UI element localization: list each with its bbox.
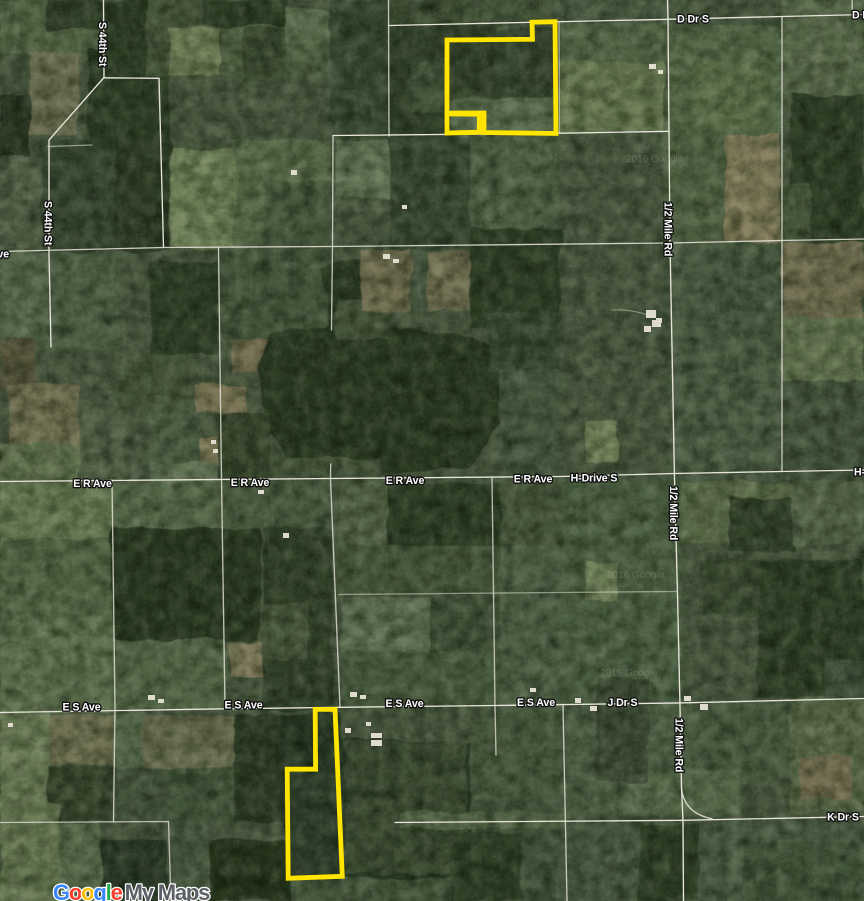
svg-text:J Dr S: J Dr S bbox=[607, 697, 637, 709]
svg-text:GoogleMy Maps: GoogleMy Maps bbox=[53, 880, 210, 901]
svg-text:E Q Ave: E Q Ave bbox=[0, 249, 9, 261]
svg-text:K Dr S: K Dr S bbox=[827, 812, 859, 824]
svg-text:S 44th St: S 44th St bbox=[42, 201, 54, 246]
svg-text:2016 Google: 2016 Google bbox=[626, 154, 684, 165]
svg-text:E S Ave: E S Ave bbox=[517, 697, 555, 709]
svg-text:D Dr S: D Dr S bbox=[677, 14, 709, 26]
svg-text:E S Ave: E S Ave bbox=[63, 702, 101, 714]
svg-text:1/2 Mile Rd: 1/2 Mile Rd bbox=[662, 202, 674, 256]
svg-text:2016 Google: 2016 Google bbox=[607, 570, 665, 581]
svg-text:E S Ave: E S Ave bbox=[225, 700, 263, 712]
svg-text:2016 Google: 2016 Google bbox=[600, 668, 658, 679]
svg-text:E R Ave: E R Ave bbox=[73, 478, 112, 490]
svg-text:E R Ave: E R Ave bbox=[231, 477, 270, 489]
svg-text:E R Ave: E R Ave bbox=[386, 475, 425, 487]
svg-text:D Dr: D Dr bbox=[852, 10, 864, 22]
svg-text:1/2 Mile Rd: 1/2 Mile Rd bbox=[673, 718, 685, 772]
svg-text:1/2 Mile Rd: 1/2 Mile Rd bbox=[667, 486, 679, 540]
svg-text:H-D: H-D bbox=[854, 467, 864, 479]
svg-text:E R Ave: E R Ave bbox=[514, 474, 553, 486]
svg-text:E S Ave: E S Ave bbox=[386, 698, 424, 710]
svg-text:S 44th St: S 44th St bbox=[96, 22, 108, 67]
svg-text:H-Drive S: H-Drive S bbox=[571, 473, 618, 485]
